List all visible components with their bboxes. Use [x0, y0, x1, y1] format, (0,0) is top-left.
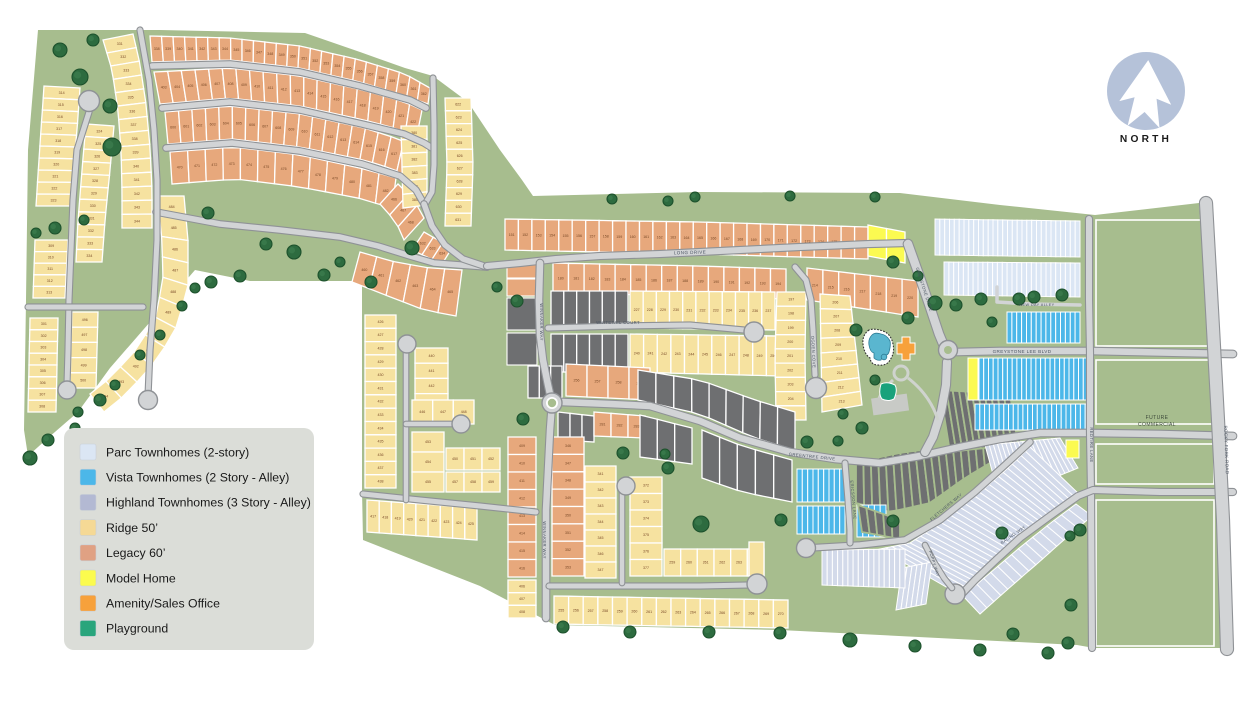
svg-text:258: 258 — [602, 609, 608, 613]
svg-text:163: 163 — [670, 236, 676, 240]
svg-text:622: 622 — [455, 103, 461, 107]
svg-text:347: 347 — [565, 461, 571, 465]
svg-text:155: 155 — [563, 234, 569, 238]
svg-text:186: 186 — [651, 278, 657, 282]
svg-text:341: 341 — [188, 47, 194, 51]
svg-text:172: 172 — [791, 239, 797, 243]
svg-text:282: 282 — [617, 424, 623, 428]
svg-text:234: 234 — [726, 309, 732, 313]
svg-text:240: 240 — [634, 351, 640, 355]
svg-text:206: 206 — [832, 300, 838, 304]
svg-text:199: 199 — [788, 326, 794, 330]
svg-text:262: 262 — [661, 610, 667, 614]
svg-text:361: 361 — [411, 87, 417, 91]
svg-text:602: 602 — [196, 123, 202, 127]
svg-text:308: 308 — [39, 404, 45, 408]
svg-text:338: 338 — [154, 47, 160, 51]
svg-text:210: 210 — [836, 357, 842, 361]
svg-text:486: 486 — [172, 247, 178, 251]
svg-text:349: 349 — [565, 496, 571, 500]
svg-text:438: 438 — [378, 480, 384, 484]
svg-text:348: 348 — [565, 479, 571, 483]
svg-text:317: 317 — [56, 127, 62, 131]
svg-text:353: 353 — [565, 566, 571, 570]
svg-text:COMMERCIAL: COMMERCIAL — [1138, 422, 1176, 428]
svg-text:332: 332 — [88, 229, 94, 233]
svg-text:624: 624 — [456, 128, 462, 132]
svg-text:410: 410 — [519, 461, 525, 465]
svg-text:489: 489 — [165, 311, 171, 315]
svg-text:335: 335 — [128, 96, 134, 100]
svg-text:344: 344 — [134, 219, 140, 223]
svg-text:422: 422 — [410, 120, 416, 124]
svg-text:601: 601 — [183, 125, 189, 129]
svg-text:404: 404 — [174, 85, 180, 89]
svg-text:342: 342 — [199, 47, 205, 51]
svg-text:415: 415 — [519, 549, 525, 553]
svg-text:312: 312 — [47, 279, 53, 283]
svg-text:305: 305 — [40, 369, 46, 373]
svg-text:476: 476 — [281, 167, 287, 171]
svg-text:218: 218 — [875, 292, 881, 296]
svg-text:472: 472 — [211, 163, 217, 167]
svg-text:429: 429 — [378, 360, 384, 364]
svg-text:194: 194 — [775, 282, 781, 286]
svg-text:182: 182 — [589, 277, 595, 281]
svg-text:215: 215 — [828, 285, 834, 289]
svg-text:309: 309 — [48, 244, 54, 248]
svg-text:315: 315 — [58, 103, 64, 107]
svg-text:261: 261 — [646, 610, 652, 614]
svg-text:340: 340 — [133, 164, 139, 168]
svg-text:306: 306 — [40, 381, 46, 385]
svg-text:417: 417 — [347, 100, 353, 104]
svg-text:154: 154 — [549, 234, 555, 238]
svg-text:353: 353 — [323, 61, 329, 65]
svg-text:471: 471 — [194, 164, 200, 168]
svg-text:209: 209 — [835, 343, 841, 347]
svg-text:Playground: Playground — [106, 622, 168, 636]
svg-text:628: 628 — [457, 179, 463, 183]
svg-text:421: 421 — [398, 114, 404, 118]
svg-text:328: 328 — [92, 179, 98, 183]
svg-text:217: 217 — [860, 290, 866, 294]
svg-text:625: 625 — [456, 141, 462, 145]
svg-text:408: 408 — [228, 82, 234, 86]
svg-text:419: 419 — [373, 107, 379, 111]
svg-text:340: 340 — [177, 47, 183, 51]
svg-text:162: 162 — [657, 236, 663, 240]
svg-text:198: 198 — [788, 312, 794, 316]
svg-text:431: 431 — [378, 386, 384, 390]
svg-text:214: 214 — [812, 283, 818, 287]
svg-text:610: 610 — [302, 130, 308, 134]
svg-text:426: 426 — [378, 320, 384, 324]
svg-text:Ridge 50’: Ridge 50’ — [106, 521, 158, 535]
svg-text:415: 415 — [320, 94, 326, 98]
svg-text:311: 311 — [47, 267, 53, 271]
svg-text:600: 600 — [170, 126, 176, 130]
svg-text:220: 220 — [907, 296, 913, 300]
svg-text:269: 269 — [763, 612, 769, 616]
svg-text:629: 629 — [456, 192, 462, 196]
svg-text:372: 372 — [643, 483, 649, 487]
svg-text:482: 482 — [383, 189, 389, 193]
svg-text:354: 354 — [334, 64, 340, 68]
svg-text:337: 337 — [131, 123, 137, 127]
svg-text:474: 474 — [246, 163, 252, 167]
svg-text:459: 459 — [488, 480, 494, 484]
svg-text:349: 349 — [279, 53, 285, 57]
svg-text:338: 338 — [132, 137, 138, 141]
svg-text:339: 339 — [133, 151, 139, 155]
svg-text:374: 374 — [643, 517, 649, 521]
svg-text:603: 603 — [210, 122, 216, 126]
svg-text:260: 260 — [686, 561, 692, 565]
svg-text:468: 468 — [408, 221, 414, 225]
svg-text:341: 341 — [134, 178, 140, 182]
svg-text:607: 607 — [262, 125, 268, 129]
svg-text:267: 267 — [734, 611, 740, 615]
svg-text:192: 192 — [744, 281, 750, 285]
svg-text:406: 406 — [201, 83, 207, 87]
svg-text:263: 263 — [675, 610, 681, 614]
svg-text:323: 323 — [51, 198, 57, 202]
svg-text:WINNAKER WAY: WINNAKER WAY — [539, 303, 544, 341]
svg-text:488: 488 — [170, 290, 176, 294]
svg-text:227: 227 — [634, 308, 640, 312]
svg-text:151: 151 — [509, 233, 515, 237]
svg-text:229: 229 — [660, 308, 666, 312]
svg-text:343: 343 — [598, 504, 604, 508]
svg-text:200: 200 — [787, 340, 793, 344]
svg-text:185: 185 — [635, 278, 641, 282]
svg-text:207: 207 — [833, 315, 839, 319]
svg-text:623: 623 — [456, 115, 462, 119]
svg-text:345: 345 — [598, 536, 604, 540]
svg-text:Vista Townhomes (2 Story - All: Vista Townhomes (2 Story - Alley) — [106, 471, 289, 485]
svg-text:236: 236 — [752, 309, 758, 313]
svg-text:321: 321 — [52, 175, 58, 179]
svg-text:NORTH: NORTH — [1120, 134, 1172, 145]
svg-text:362: 362 — [421, 92, 427, 96]
svg-text:497: 497 — [81, 333, 87, 337]
svg-text:428: 428 — [378, 347, 384, 351]
svg-text:329: 329 — [91, 192, 97, 196]
svg-text:382: 382 — [411, 158, 417, 162]
svg-text:422: 422 — [431, 519, 437, 523]
svg-text:351: 351 — [565, 531, 571, 535]
svg-text:418: 418 — [382, 516, 388, 520]
svg-text:219: 219 — [891, 294, 897, 298]
svg-text:202: 202 — [787, 368, 793, 372]
svg-text:344: 344 — [598, 520, 604, 524]
svg-text:454: 454 — [425, 460, 431, 464]
svg-text:498: 498 — [81, 348, 87, 352]
svg-text:484: 484 — [169, 205, 175, 209]
svg-text:212: 212 — [838, 385, 844, 389]
svg-text:630: 630 — [456, 205, 462, 209]
svg-text:413: 413 — [519, 514, 525, 518]
svg-text:613: 613 — [340, 138, 346, 142]
svg-text:453: 453 — [425, 440, 431, 444]
svg-text:441: 441 — [429, 369, 435, 373]
svg-text:416: 416 — [519, 567, 525, 571]
svg-text:197: 197 — [788, 297, 794, 301]
svg-text:410: 410 — [254, 84, 260, 88]
svg-text:460: 460 — [361, 268, 367, 272]
svg-text:412: 412 — [281, 87, 287, 91]
svg-text:322: 322 — [51, 186, 57, 190]
svg-text:318: 318 — [55, 139, 61, 143]
svg-text:615: 615 — [366, 144, 372, 148]
svg-text:187: 187 — [667, 279, 673, 283]
svg-text:376: 376 — [643, 550, 649, 554]
svg-text:314: 314 — [59, 91, 65, 95]
svg-text:248: 248 — [743, 354, 749, 358]
svg-text:500: 500 — [80, 379, 86, 383]
svg-text:247: 247 — [729, 353, 735, 357]
svg-text:171: 171 — [778, 239, 784, 243]
svg-text:245: 245 — [702, 353, 708, 357]
svg-text:414: 414 — [307, 92, 313, 96]
svg-text:333: 333 — [123, 69, 129, 73]
svg-text:414: 414 — [519, 532, 525, 536]
svg-text:FUTURE: FUTURE — [1146, 415, 1169, 421]
svg-text:256: 256 — [573, 609, 579, 613]
svg-text:359: 359 — [389, 79, 395, 83]
svg-text:617: 617 — [391, 152, 397, 156]
svg-text:191: 191 — [729, 280, 735, 284]
svg-text:406: 406 — [519, 585, 525, 589]
svg-text:231: 231 — [686, 308, 692, 312]
svg-text:REDTIRE LANE: REDTIRE LANE — [1089, 427, 1094, 462]
svg-text:418: 418 — [360, 103, 366, 107]
svg-text:WINNAKER WAY: WINNAKER WAY — [542, 521, 547, 559]
svg-text:425: 425 — [468, 522, 474, 526]
svg-text:333: 333 — [87, 242, 93, 246]
svg-text:632: 632 — [420, 242, 426, 246]
svg-text:262: 262 — [719, 561, 725, 565]
svg-text:270: 270 — [778, 612, 784, 616]
svg-text:434: 434 — [378, 426, 384, 430]
svg-text:375: 375 — [643, 533, 649, 537]
svg-text:480: 480 — [349, 180, 355, 184]
svg-text:423: 423 — [443, 520, 449, 524]
svg-text:334: 334 — [86, 254, 92, 258]
svg-text:487: 487 — [172, 269, 178, 273]
svg-text:303: 303 — [40, 346, 46, 350]
svg-text:611: 611 — [315, 132, 321, 136]
svg-text:159: 159 — [616, 235, 622, 239]
svg-text:342: 342 — [598, 488, 604, 492]
svg-text:373: 373 — [643, 500, 649, 504]
svg-text:408: 408 — [519, 610, 525, 614]
svg-text:183: 183 — [604, 277, 610, 281]
svg-text:181: 181 — [573, 277, 579, 281]
svg-text:204: 204 — [788, 397, 794, 401]
svg-text:283: 283 — [634, 425, 640, 429]
svg-text:420: 420 — [407, 517, 413, 521]
svg-text:475: 475 — [263, 165, 269, 169]
svg-text:Highland Townhomes (3 Story -: Highland Townhomes (3 Story - Alley) — [106, 496, 311, 510]
svg-text:464: 464 — [430, 288, 436, 292]
svg-text:166: 166 — [710, 237, 716, 241]
svg-text:351: 351 — [301, 56, 307, 60]
svg-text:479: 479 — [332, 176, 338, 180]
svg-text:608: 608 — [275, 126, 281, 130]
svg-text:462: 462 — [395, 279, 401, 283]
svg-text:405: 405 — [187, 84, 193, 88]
svg-text:330: 330 — [90, 204, 96, 208]
svg-text:421: 421 — [419, 518, 425, 522]
svg-text:249: 249 — [757, 354, 763, 358]
svg-text:232: 232 — [700, 308, 706, 312]
svg-text:201: 201 — [787, 354, 793, 358]
svg-text:616: 616 — [379, 148, 385, 152]
svg-text:334: 334 — [126, 82, 132, 86]
svg-text:304: 304 — [40, 357, 46, 361]
svg-text:161: 161 — [643, 235, 649, 239]
svg-text:307: 307 — [39, 393, 45, 397]
svg-text:265: 265 — [705, 611, 711, 615]
svg-text:492: 492 — [133, 365, 139, 369]
svg-text:346: 346 — [565, 444, 571, 448]
svg-text:331: 331 — [89, 217, 95, 221]
svg-text:377: 377 — [643, 566, 649, 570]
svg-text:465: 465 — [447, 290, 453, 294]
svg-text:164: 164 — [684, 236, 690, 240]
svg-text:165: 165 — [697, 236, 703, 240]
svg-text:407: 407 — [214, 82, 220, 86]
svg-text:381: 381 — [411, 144, 417, 148]
svg-text:451: 451 — [470, 457, 476, 461]
svg-text:496: 496 — [82, 318, 88, 322]
svg-text:188: 188 — [682, 279, 688, 283]
svg-text:261: 261 — [703, 561, 709, 565]
svg-text:346: 346 — [245, 49, 251, 53]
svg-text:255: 255 — [558, 608, 564, 612]
svg-text:237: 237 — [765, 309, 771, 313]
svg-text:606: 606 — [249, 123, 255, 127]
svg-text:383: 383 — [412, 171, 418, 175]
svg-text:325: 325 — [95, 142, 101, 146]
svg-text:345: 345 — [233, 48, 239, 52]
svg-text:631: 631 — [455, 218, 461, 222]
svg-text:355: 355 — [346, 67, 352, 71]
svg-text:458: 458 — [470, 480, 476, 484]
svg-text:403: 403 — [161, 86, 167, 90]
svg-text:352: 352 — [312, 59, 318, 63]
svg-text:419: 419 — [395, 516, 401, 520]
svg-text:473: 473 — [229, 162, 235, 166]
svg-text:Amenity/Sales Office: Amenity/Sales Office — [106, 597, 220, 611]
svg-text:203: 203 — [788, 383, 794, 387]
svg-text:352: 352 — [565, 548, 571, 552]
svg-text:424: 424 — [456, 521, 462, 525]
svg-text:435: 435 — [378, 440, 384, 444]
svg-text:Parc Townhomes (2-story): Parc Townhomes (2-story) — [106, 445, 249, 459]
svg-text:310: 310 — [48, 256, 54, 260]
svg-text:346: 346 — [598, 552, 604, 556]
svg-text:412: 412 — [519, 496, 525, 500]
svg-text:180: 180 — [558, 276, 564, 280]
svg-text:256: 256 — [574, 379, 580, 383]
svg-text:432: 432 — [378, 400, 384, 404]
svg-text:331: 331 — [117, 42, 123, 46]
svg-text:485: 485 — [171, 226, 177, 230]
svg-text:301: 301 — [41, 322, 47, 326]
svg-text:409: 409 — [241, 83, 247, 87]
svg-text:213: 213 — [839, 400, 845, 404]
svg-text:436: 436 — [378, 453, 384, 457]
svg-text:Model Home: Model Home — [106, 571, 176, 585]
svg-text:152: 152 — [522, 233, 528, 237]
svg-text:499: 499 — [81, 363, 87, 367]
svg-text:407: 407 — [519, 597, 525, 601]
svg-text:244: 244 — [688, 352, 694, 356]
svg-text:264: 264 — [690, 611, 696, 615]
svg-text:614: 614 — [353, 141, 359, 145]
svg-text:302: 302 — [41, 334, 47, 338]
svg-text:233: 233 — [713, 309, 719, 313]
svg-text:477: 477 — [298, 170, 304, 174]
svg-text:411: 411 — [519, 479, 525, 483]
svg-text:216: 216 — [844, 288, 850, 292]
svg-text:208: 208 — [834, 329, 840, 333]
svg-text:417: 417 — [370, 515, 376, 519]
svg-text:467: 467 — [400, 209, 406, 213]
svg-text:358: 358 — [378, 76, 384, 80]
svg-text:243: 243 — [675, 352, 681, 356]
svg-text:452: 452 — [488, 457, 494, 461]
svg-text:350: 350 — [565, 513, 571, 517]
svg-text:211: 211 — [837, 371, 843, 375]
svg-text:633: 633 — [430, 247, 436, 251]
svg-text:319: 319 — [54, 151, 60, 155]
svg-text:326: 326 — [94, 154, 100, 158]
svg-text:634: 634 — [439, 252, 445, 256]
svg-text:455: 455 — [425, 480, 431, 484]
svg-text:457: 457 — [452, 480, 458, 484]
svg-text:442: 442 — [429, 384, 435, 388]
svg-text:343: 343 — [134, 206, 140, 210]
svg-text:258: 258 — [616, 381, 622, 385]
svg-text:169: 169 — [751, 238, 757, 242]
svg-text:170: 170 — [764, 238, 770, 242]
svg-text:360: 360 — [400, 83, 406, 87]
svg-text:NEW DAY ALLEY: NEW DAY ALLEY — [1019, 303, 1054, 307]
svg-text:605: 605 — [236, 122, 242, 126]
svg-text:320: 320 — [53, 163, 59, 167]
svg-text:612: 612 — [327, 135, 333, 139]
svg-text:433: 433 — [378, 413, 384, 417]
svg-text:190: 190 — [713, 280, 719, 284]
svg-text:446: 446 — [419, 410, 425, 414]
svg-text:246: 246 — [716, 353, 722, 357]
svg-text:409: 409 — [519, 444, 525, 448]
svg-text:437: 437 — [378, 466, 384, 470]
svg-text:609: 609 — [288, 128, 294, 132]
svg-text:481: 481 — [366, 184, 372, 188]
svg-text:257: 257 — [595, 380, 601, 384]
svg-text:478: 478 — [315, 173, 321, 177]
svg-text:257: 257 — [588, 609, 594, 613]
svg-text:153: 153 — [536, 233, 542, 237]
svg-text:WHITETAIL COURT: WHITETAIL COURT — [596, 320, 640, 325]
svg-text:416: 416 — [334, 97, 340, 101]
svg-text:341: 341 — [598, 472, 604, 476]
